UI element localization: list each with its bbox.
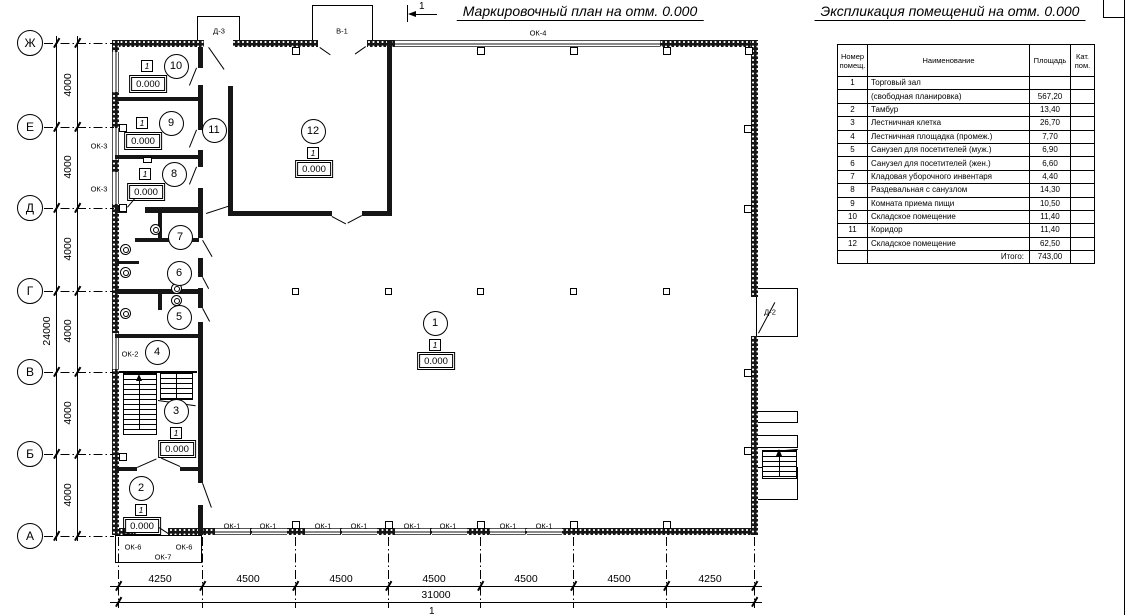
partition-wall xyxy=(115,289,199,294)
table-cell: 14,30 xyxy=(1030,184,1071,197)
exterior-wall xyxy=(751,40,758,297)
door-leaf xyxy=(137,458,157,467)
dim-label: 4500 xyxy=(327,573,354,585)
wall-pilaster xyxy=(292,521,300,529)
room-number-bubble: 1 xyxy=(423,311,448,336)
structural-column xyxy=(477,288,484,295)
wall-pilaster xyxy=(119,204,127,212)
table-cell: Тамбур xyxy=(868,103,1030,116)
dim-label: 4000 xyxy=(62,235,74,262)
wall-pilaster xyxy=(119,453,127,461)
axis-bubble: Ж xyxy=(17,30,43,56)
partition-wall xyxy=(198,47,203,68)
window xyxy=(395,40,660,47)
table-cell: 10 xyxy=(838,210,868,223)
room-number-bubble: 8 xyxy=(162,162,187,187)
table-cell: 2 xyxy=(838,103,868,116)
table-cell: 13,40 xyxy=(1030,103,1071,116)
table-cell: 9 xyxy=(838,197,868,210)
opening-label: ОК-1 xyxy=(500,522,517,531)
door-leaf xyxy=(206,206,229,214)
table-cell: 7,70 xyxy=(1030,130,1071,143)
table-header-cell: Наименование xyxy=(868,45,1030,77)
partition-wall xyxy=(115,334,199,338)
table-cell xyxy=(1071,170,1095,183)
door-leaf xyxy=(202,240,212,257)
table-cell: 6,60 xyxy=(1030,157,1071,170)
partition-wall xyxy=(145,207,199,213)
dim-label: 4000 xyxy=(62,71,74,98)
door-leaf xyxy=(347,215,362,223)
explication-table: Номер помещ.НаименованиеПлощадьКат. пом.… xyxy=(837,44,1095,264)
opening-label: ОК-3 xyxy=(91,185,108,194)
door-leaf xyxy=(189,167,197,185)
table-cell: Коридор xyxy=(868,224,1030,237)
structural-column xyxy=(292,288,299,295)
table-cell xyxy=(1071,197,1095,210)
opening-label: ОК-6 xyxy=(176,543,193,552)
partition-wall xyxy=(198,85,203,130)
table-cell: 10,50 xyxy=(1030,197,1071,210)
axis-bubble: Д xyxy=(17,195,43,221)
section-mark-arrowhead-icon xyxy=(408,11,416,17)
floor-type-mark: 1 xyxy=(135,504,147,516)
table-cell: 26,70 xyxy=(1030,117,1071,130)
floor-type-mark: 1 xyxy=(307,147,319,159)
table-row: Итого:743,00 xyxy=(838,251,1095,264)
window xyxy=(112,333,119,369)
table-cell: 11,40 xyxy=(1030,224,1071,237)
level-mark: 0.000 xyxy=(160,442,194,456)
wall-pilaster xyxy=(570,47,578,55)
table-header-cell: Кат. пом. xyxy=(1071,45,1095,77)
table-cell: Санузел для посетителей (жен.) xyxy=(868,157,1030,170)
stair-arrowhead-icon xyxy=(136,374,142,381)
axis-bubble: Б xyxy=(17,441,43,467)
level-mark: 0.000 xyxy=(129,185,163,199)
table-header-row: Номер помещ.НаименованиеПлощадьКат. пом. xyxy=(838,45,1095,77)
door-leaf xyxy=(202,308,210,322)
table-cell: Торговый зал xyxy=(868,77,1030,90)
axis-bubble: В xyxy=(17,359,43,385)
partition-wall xyxy=(115,467,137,471)
exterior-wall xyxy=(112,40,119,535)
dim-label: 4500 xyxy=(605,573,632,585)
room-number-bubble: 4 xyxy=(145,340,170,365)
level-mark: 0.000 xyxy=(131,77,165,91)
toilet-fixture-icon xyxy=(120,308,131,319)
room-number-bubble: 3 xyxy=(164,399,189,424)
table-cell: 11,40 xyxy=(1030,210,1071,223)
door-opening xyxy=(318,40,367,47)
dim-label: 4000 xyxy=(62,153,74,180)
table-cell: 4 xyxy=(838,130,868,143)
wall-pilaster xyxy=(292,47,300,55)
opening-label: Д-2 xyxy=(764,308,776,317)
door-leaf xyxy=(355,46,366,54)
partition-wall xyxy=(180,467,199,471)
table-cell: 743,00 xyxy=(1030,251,1071,264)
grid-line xyxy=(573,537,574,608)
wall-pilaster xyxy=(119,124,127,132)
dim-label: 4000 xyxy=(62,317,74,344)
dim-label: 4500 xyxy=(234,573,261,585)
door-leaf xyxy=(202,483,212,508)
wall-pilaster xyxy=(570,521,578,529)
bottom-axis-mark: 1 xyxy=(429,606,435,615)
opening-label: ОК-1 xyxy=(440,522,457,531)
section-mark-number: 1 xyxy=(419,1,425,12)
table-cell: Лестничная клетка xyxy=(868,117,1030,130)
table-cell: 12 xyxy=(838,237,868,250)
wall-pilaster xyxy=(477,521,485,529)
table-cell: 11 xyxy=(838,224,868,237)
table-cell: Кладовая уборочного инвентаря xyxy=(868,170,1030,183)
dim-label: 4250 xyxy=(146,573,173,585)
table-cell xyxy=(1071,130,1095,143)
partition-wall xyxy=(198,322,203,467)
table-row: 12Складское помещение62,50 xyxy=(838,237,1095,250)
porch-outline xyxy=(757,435,798,448)
partition-wall xyxy=(198,258,203,277)
table-cell xyxy=(1071,251,1095,264)
table-cell xyxy=(1071,224,1095,237)
room-number-bubble: 10 xyxy=(164,54,189,79)
door-leaf xyxy=(202,277,209,289)
table-cell: Складское помещение xyxy=(868,237,1030,250)
table-row: 6Санузел для посетителей (жен.)6,60 xyxy=(838,157,1095,170)
structural-column xyxy=(663,288,670,295)
window xyxy=(112,52,119,92)
exterior-stair-arrow xyxy=(779,454,780,476)
dim-label-total: 31000 xyxy=(419,589,452,601)
table-row: 4Лестничная площадка (промеж.)7,70 xyxy=(838,130,1095,143)
grid-line xyxy=(202,537,203,608)
wall-pilaster xyxy=(744,369,752,377)
door-leaf xyxy=(332,216,347,224)
sink-fixture-icon xyxy=(143,157,152,163)
explication-table-holder: Номер помещ.НаименованиеПлощадьКат. пом.… xyxy=(837,44,1095,264)
partition-wall xyxy=(115,261,139,264)
room-number-bubble: 7 xyxy=(168,225,193,250)
table-row: 5Санузел для посетителей (муж.)6,90 xyxy=(838,143,1095,156)
dim-label: 4250 xyxy=(696,573,723,585)
porch-outline xyxy=(757,411,798,423)
opening-label: ОК-4 xyxy=(530,29,547,38)
table-cell xyxy=(1071,77,1095,90)
window xyxy=(112,172,119,204)
table-cell: 8 xyxy=(838,184,868,197)
opening-label: ОК-6 xyxy=(125,543,142,552)
table-cell: 5 xyxy=(838,143,868,156)
level-mark: 0.000 xyxy=(419,354,453,368)
stair-arrow xyxy=(176,374,177,400)
table-row: (свободная планировка)567,20 xyxy=(838,90,1095,103)
table-cell xyxy=(1071,237,1095,250)
dim-label-total: 24000 xyxy=(41,314,53,347)
toilet-fixture-icon xyxy=(150,224,161,235)
axis-bubble: А xyxy=(17,523,43,549)
wall-pilaster xyxy=(663,47,671,55)
opening-label: ОК-3 xyxy=(91,142,108,151)
partition-wall xyxy=(228,211,332,216)
wall-pilaster xyxy=(744,125,752,133)
explication-title: Экспликация помещений на отм. 0.000 xyxy=(815,3,1086,21)
table-cell: Раздевальная с санузлом xyxy=(868,184,1030,197)
axis-bubble: Е xyxy=(17,114,43,140)
axis-bubble: Г xyxy=(17,278,43,304)
toilet-fixture-icon xyxy=(120,244,131,255)
opening-label: ОК-1 xyxy=(351,522,368,531)
floor-type-mark: 1 xyxy=(429,339,441,351)
table-cell xyxy=(838,251,868,264)
table-cell xyxy=(1071,157,1095,170)
wall-pilaster xyxy=(744,447,752,455)
floor-type-mark: 1 xyxy=(141,60,153,72)
room-number-bubble: 9 xyxy=(159,111,184,136)
floor-type-mark: 1 xyxy=(139,168,151,180)
table-header-cell: Площадь xyxy=(1030,45,1071,77)
door-leaf xyxy=(161,458,181,467)
opening-label: ОК-1 xyxy=(224,522,241,531)
dim-label: 4500 xyxy=(420,573,447,585)
exterior-wall xyxy=(751,336,758,535)
partition-wall xyxy=(228,86,233,213)
table-cell: Итого: xyxy=(868,251,1030,264)
wall-pilaster xyxy=(745,47,753,55)
table-cell xyxy=(1071,143,1095,156)
wall-pilaster xyxy=(744,205,752,213)
table-row: 10Складское помещение11,40 xyxy=(838,210,1095,223)
structural-column xyxy=(385,288,392,295)
dim-label: 4500 xyxy=(512,573,539,585)
door-leaf xyxy=(319,47,330,55)
table-row: 11Коридор11,40 xyxy=(838,224,1095,237)
toilet-fixture-icon xyxy=(120,267,131,278)
table-cell: 7 xyxy=(838,170,868,183)
table-cell xyxy=(838,90,868,103)
level-mark: 0.000 xyxy=(126,134,160,148)
grid-line xyxy=(480,537,481,608)
grid-line xyxy=(666,537,667,608)
opening-label: В-1 xyxy=(336,27,348,36)
table-cell: 1 xyxy=(838,77,868,90)
plan-title: Маркировочный план на отм. 0.000 xyxy=(457,3,704,21)
partition-wall xyxy=(387,40,392,216)
room-number-bubble: 12 xyxy=(301,119,326,144)
dim-label: 4000 xyxy=(62,481,74,508)
partition-wall xyxy=(198,188,203,238)
table-row: 7Кладовая уборочного инвентаря4,40 xyxy=(838,170,1095,183)
table-cell: 3 xyxy=(838,117,868,130)
table-cell: Складское помещение xyxy=(868,210,1030,223)
table-cell: 567,20 xyxy=(1030,90,1071,103)
table-row: 2Тамбур13,40 xyxy=(838,103,1095,116)
wall-pilaster xyxy=(663,521,671,529)
table-row: 9Комната приема пищи10,50 xyxy=(838,197,1095,210)
partition-wall xyxy=(115,97,199,101)
opening-label: ОК-1 xyxy=(404,522,421,531)
wall-pilaster xyxy=(385,521,393,529)
table-cell: 4,40 xyxy=(1030,170,1071,183)
partition-wall xyxy=(158,289,162,310)
table-cell: 62,50 xyxy=(1030,237,1071,250)
opening-label: ОК-1 xyxy=(260,522,277,531)
stair-arrow xyxy=(139,379,140,429)
table-header-cell: Номер помещ. xyxy=(838,45,868,77)
grid-line xyxy=(118,537,119,608)
room-number-bubble: 5 xyxy=(167,305,192,330)
table-row: 8Раздевальная с санузлом14,30 xyxy=(838,184,1095,197)
table-cell xyxy=(1071,184,1095,197)
exterior-stair-arrowhead-icon xyxy=(776,449,782,456)
sheet-frame-notch-h xyxy=(1103,17,1125,18)
table-row: 1Торговый зал xyxy=(838,77,1095,90)
grid-line xyxy=(388,537,389,608)
table-cell: (свободная планировка) xyxy=(868,90,1030,103)
opening-label: ОК-1 xyxy=(315,522,332,531)
dim-label: 4000 xyxy=(62,399,74,426)
table-cell: 6,90 xyxy=(1030,143,1071,156)
floor-type-mark: 1 xyxy=(136,117,148,129)
dim-line-bottom xyxy=(110,602,762,603)
table-row: 3Лестничная клетка26,70 xyxy=(838,117,1095,130)
table-cell: Комната приема пищи xyxy=(868,197,1030,210)
opening-label: ОК-2 xyxy=(122,350,139,359)
door-leaf xyxy=(189,130,197,148)
door-leaf xyxy=(189,68,197,86)
floor-type-mark: 1 xyxy=(170,427,182,439)
table-cell: Санузел для посетителей (муж.) xyxy=(868,143,1030,156)
grid-line xyxy=(295,537,296,608)
structural-column xyxy=(570,288,577,295)
porch-outline xyxy=(312,5,373,43)
table-cell: 6 xyxy=(838,157,868,170)
partition-wall xyxy=(115,155,199,159)
partition-wall xyxy=(362,211,392,216)
wall-pilaster xyxy=(477,47,485,55)
table-cell xyxy=(1071,210,1095,223)
table-cell xyxy=(1071,117,1095,130)
grid-line xyxy=(754,537,755,608)
opening-label: Д-3 xyxy=(213,27,225,36)
room-number-bubble: 6 xyxy=(167,261,192,286)
table-cell xyxy=(1071,103,1095,116)
level-mark: 0.000 xyxy=(297,162,331,176)
opening-label: ОК-1 xyxy=(536,522,553,531)
table-cell: Лестничная площадка (промеж.) xyxy=(868,130,1030,143)
porch-outline xyxy=(756,288,798,337)
room-number-bubble: 2 xyxy=(129,476,154,501)
table-cell xyxy=(1030,77,1071,90)
sheet-frame-right xyxy=(1124,0,1125,615)
sheet-frame-notch-v xyxy=(1103,0,1104,18)
door-leaf xyxy=(208,47,224,70)
partition-wall xyxy=(198,505,203,535)
level-mark: 0.000 xyxy=(125,519,159,533)
table-cell xyxy=(1071,90,1095,103)
opening-label: ОК-7 xyxy=(155,553,172,562)
room-number-bubble: 11 xyxy=(202,118,227,143)
drawing-sheet: ЖЕДГВБА400040004000400040004000240004250… xyxy=(0,0,1137,615)
